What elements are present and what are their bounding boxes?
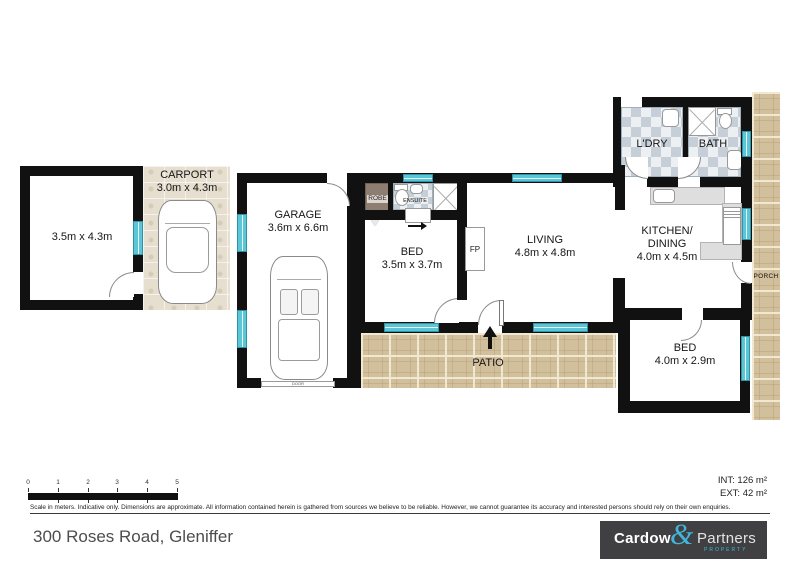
divider: [30, 513, 770, 514]
scale-tick-label: 4: [145, 479, 149, 486]
door-opening: [682, 308, 703, 320]
wall: [133, 294, 143, 310]
property-address: 300 Roses Road, Gleniffer: [33, 527, 233, 547]
shower-icon: [433, 183, 459, 212]
window: [133, 221, 143, 255]
room-label-bed2: BED4.0m x 2.9m: [655, 342, 716, 368]
wall: [20, 166, 143, 176]
porch-pavers: [752, 92, 780, 420]
wall: [618, 310, 630, 413]
door-swing: [109, 272, 134, 297]
logo-name2: Partners: [697, 530, 756, 547]
basin-icon: [727, 150, 742, 170]
logo-tagline: PROPERTY: [704, 547, 747, 553]
room-label-kitchen: KITCHEN/DINING4.0m x 4.5m: [637, 225, 698, 264]
door-swing: [434, 298, 459, 323]
scale-tick-label: 3: [115, 479, 119, 486]
wall: [237, 173, 327, 183]
window: [384, 323, 439, 332]
wall: [615, 165, 625, 210]
wall: [20, 166, 30, 310]
window: [403, 174, 433, 182]
entry-arrow-icon: [488, 337, 492, 349]
room-label-garage: GARAGE3.6m x 6.6m: [268, 209, 329, 235]
door-swing: [478, 300, 501, 325]
wall: [133, 166, 143, 272]
room-label-porch: PORCH: [754, 273, 779, 280]
stove-icon: [723, 207, 741, 245]
window: [741, 336, 750, 381]
entry-arrow-icon: [483, 326, 497, 337]
wall: [618, 401, 750, 413]
door-swing: [681, 320, 702, 341]
door-swing: [732, 262, 751, 284]
room-label-bed1: BED3.5m x 3.7m: [382, 246, 443, 272]
logo-name1: Cardow: [614, 530, 671, 547]
wall: [20, 300, 143, 310]
garage-door: DOOR: [261, 381, 335, 387]
door-opening: [621, 97, 642, 107]
disclaimer-text: Scale in meters. Indicative only. Dimens…: [30, 504, 730, 511]
toilet-icon: [719, 113, 732, 129]
room-label-living: LIVING4.8m x 4.8m: [515, 234, 576, 260]
room-label-store: 3.5m x 4.3m: [52, 231, 113, 244]
internal-area: INT: 126 m²: [718, 475, 767, 488]
room-label-ensuite: ENSUITE: [403, 198, 427, 204]
wall: [741, 185, 752, 310]
wall: [333, 378, 357, 388]
wall: [355, 333, 361, 388]
area-summary: INT: 126 m² EXT: 42 m²: [718, 475, 767, 500]
wall: [237, 173, 247, 388]
car-icon: [158, 200, 217, 304]
room-label-carport: CARPORT3.0m x 4.3m: [157, 169, 218, 195]
scale-tick-label: 0: [26, 479, 30, 486]
logo-ampersand: &: [670, 518, 693, 552]
external-area: EXT: 42 m²: [718, 488, 767, 501]
window: [742, 208, 751, 240]
window: [742, 131, 751, 157]
window: [237, 214, 247, 252]
convertible-car-icon: [270, 256, 328, 380]
sliding-door-arrow-icon: [408, 225, 421, 227]
room-label-ldry: L'DRY: [636, 138, 667, 151]
scale-tick-label: 5: [175, 479, 179, 486]
room-label-patio: PATIO: [472, 357, 503, 370]
agency-logo: Cardow & Partners PROPERTY: [600, 521, 767, 559]
window: [533, 323, 588, 332]
window: [512, 174, 562, 182]
scale-tick-label: 2: [86, 479, 90, 486]
wall: [237, 378, 261, 388]
fireplace: FP: [465, 227, 485, 271]
wall: [357, 183, 365, 333]
sliding-door-arrow-icon: [421, 222, 427, 230]
laundry-tub-icon: [662, 109, 679, 127]
door-leaf: [499, 300, 504, 326]
floor-plan-page: 3.5m x 4.3m CARPORT3.0m x 4.3m DOOR GARA…: [0, 0, 800, 565]
basin-icon: [410, 184, 423, 194]
room-label-bath: BATH: [699, 138, 728, 151]
window: [237, 310, 247, 348]
scale-tick-label: 1: [56, 479, 60, 486]
sliding-door: [405, 208, 431, 223]
sink-icon: [653, 189, 675, 203]
shower-icon: [688, 107, 716, 136]
